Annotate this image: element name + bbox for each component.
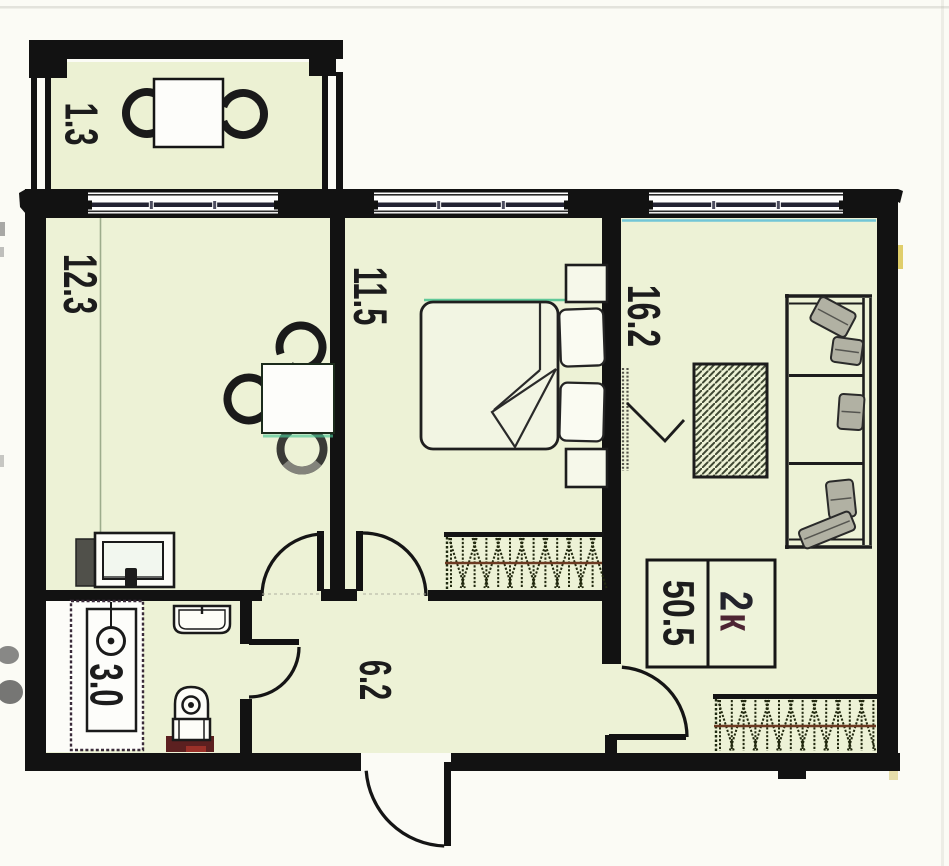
- svg-text:16.2: 16.2: [618, 285, 670, 347]
- svg-text:3.0: 3.0: [80, 663, 133, 706]
- svg-text:6.2: 6.2: [349, 660, 399, 700]
- svg-text:50.5: 50.5: [653, 580, 702, 646]
- svg-text:1.3: 1.3: [55, 102, 108, 145]
- svg-text:2к: 2к: [711, 591, 763, 633]
- svg-text:12.3: 12.3: [53, 254, 107, 314]
- svg-text:11.5: 11.5: [343, 267, 397, 326]
